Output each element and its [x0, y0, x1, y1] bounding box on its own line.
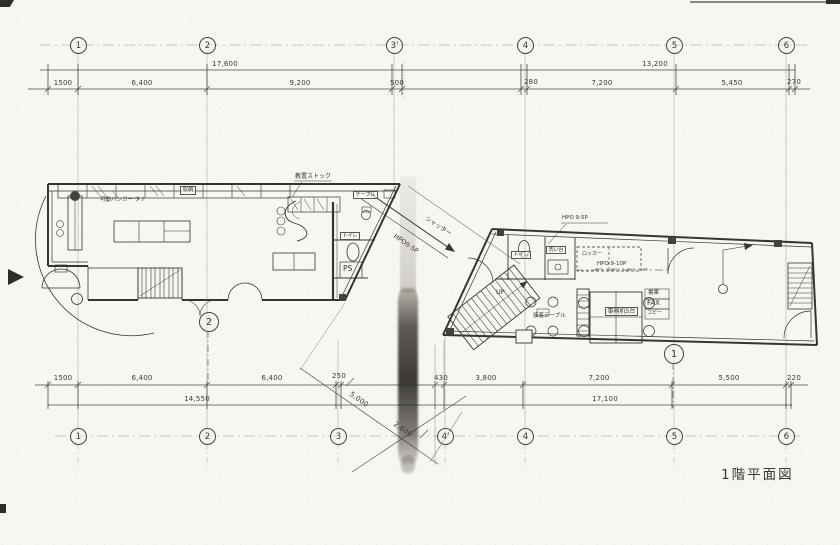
label-spec-mid: HPO 9-10P: [597, 262, 626, 268]
dimension-lines: [28, 64, 810, 409]
label-spec-top: HPO 9-5P: [562, 216, 588, 222]
label-copier: コピー: [647, 311, 662, 316]
grid-bubble-top-1: 1: [70, 37, 87, 54]
grid-bubble-bottom-2: 2: [199, 428, 216, 445]
grid-bubble-top-6: 6: [778, 37, 795, 54]
label-locker: ロッカー: [582, 252, 602, 257]
dim-top-total-left: 17,600: [212, 61, 238, 68]
grid-bubble-bottom-3: 3: [330, 428, 347, 445]
label-stock: 教置ストック: [295, 174, 331, 180]
dim-bot-seg-6400b: 6,400: [261, 375, 282, 382]
label-storage: 収納: [180, 186, 196, 195]
plan-marker-1: 1: [664, 344, 684, 364]
dim-top-seg-9200: 9,200: [289, 80, 310, 87]
dim-top-total-right: 13,200: [642, 61, 668, 68]
dim-top-seg-500: 500: [390, 80, 404, 87]
grid-lines: [40, 45, 810, 468]
label-stair-up: UP: [496, 289, 505, 296]
label-bookshelf: 書庫: [648, 291, 659, 297]
grid-bubble-bottom-6: 6: [778, 428, 795, 445]
grid-bubble-bottom-1: 1: [70, 428, 87, 445]
dim-top-seg-280: 280: [524, 79, 538, 86]
grid-bubble-top-2: 2: [199, 37, 216, 54]
grid-bubble-top-5: 5: [666, 37, 683, 54]
edge-line-top: [690, 1, 840, 3]
label-reception-table: 接客テーブル: [533, 314, 566, 320]
grid-bubble-bottom-4: 4: [517, 428, 534, 445]
dim-bot-seg-6400a: 6,400: [131, 375, 152, 382]
dim-top-seg-1500: 1500: [54, 80, 73, 87]
label-pipe-space: PS: [343, 265, 352, 273]
corner-artifact-bottomleft: [0, 504, 6, 513]
dim-bot-total-right: 17,100: [592, 396, 618, 403]
dim-top-seg-7200: 7,200: [591, 80, 612, 87]
left-arrow-marker: [8, 269, 24, 285]
dim-top-seg-5450: 5,450: [721, 80, 742, 87]
label-office-desks: 事務机5台: [605, 307, 638, 316]
grid-bubble-top-4: 4: [517, 37, 534, 54]
dim-top-seg-270: 270: [787, 79, 801, 86]
grid-bubble-top-3p: 3': [386, 37, 403, 54]
dim-bot-seg-7200: 7,200: [588, 375, 609, 382]
dim-bot-seg-220: 220: [787, 375, 801, 382]
label-toilet-left: トイレ: [340, 232, 360, 240]
label-table-left: テーブル: [353, 191, 378, 199]
right-building: [443, 223, 817, 350]
corner-artifact-topright: [826, 0, 840, 4]
plan-marker-2: 2: [199, 312, 219, 332]
floor-plan-sheet: 1 2 3' 4 5 6 1 2 3 4' 4 5 6 2 1 17,600 1…: [0, 0, 840, 545]
dim-bot-seg-5500: 5,500: [718, 375, 739, 382]
dim-top-seg-6400: 6,400: [131, 80, 152, 87]
dim-bot-seg-430: 430: [434, 375, 448, 382]
dim-bot-seg-250: 250: [332, 373, 346, 380]
drawing-title: 1階平面図: [721, 469, 794, 483]
label-hanger-shelf: 可動ハンガー タナ: [100, 198, 146, 204]
grid-bubble-bottom-4p: 4': [437, 428, 454, 445]
grid-bubble-bottom-5: 5: [666, 428, 683, 445]
dim-bot-seg-3800: 3,800: [475, 375, 496, 382]
dim-bot-seg-1500: 1500: [54, 375, 73, 382]
triangle-pointer-icon: [8, 269, 24, 285]
plan-linework: [0, 0, 840, 545]
label-toilet-right: トイレ: [511, 251, 531, 259]
left-building: [35, 181, 400, 336]
label-fax: FAX: [647, 300, 660, 307]
dim-bot-total-left: 14,550: [184, 396, 210, 403]
label-sink: 洗い台: [546, 246, 566, 254]
